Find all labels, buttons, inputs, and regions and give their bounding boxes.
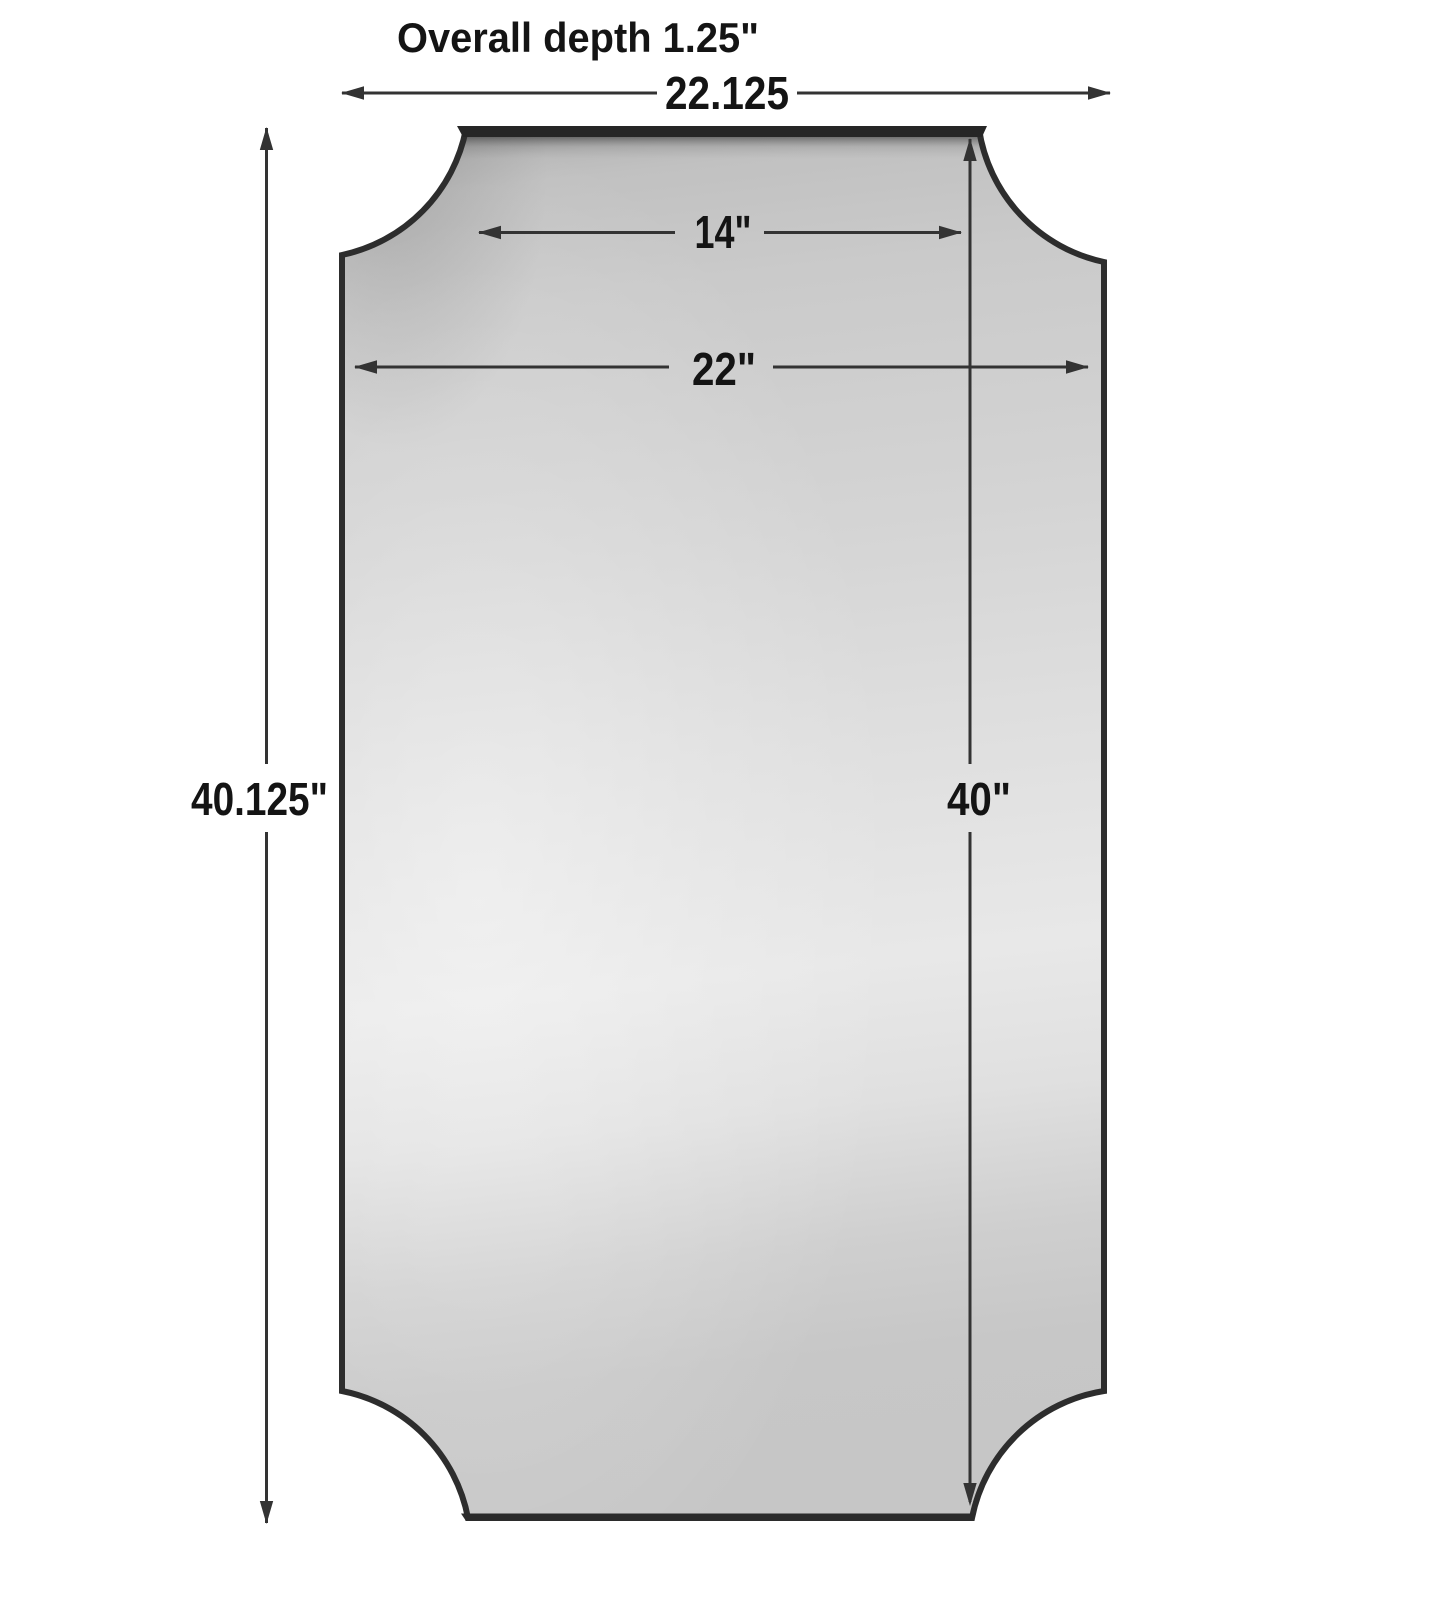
svg-text:14": 14"	[695, 206, 752, 258]
svg-text:Overall depth 1.25": Overall depth 1.25"	[397, 14, 759, 61]
svg-text:22.125: 22.125	[665, 67, 789, 119]
svg-text:40.125": 40.125"	[191, 773, 328, 825]
svg-text:22": 22"	[692, 343, 756, 395]
svg-text:40": 40"	[947, 773, 1011, 825]
